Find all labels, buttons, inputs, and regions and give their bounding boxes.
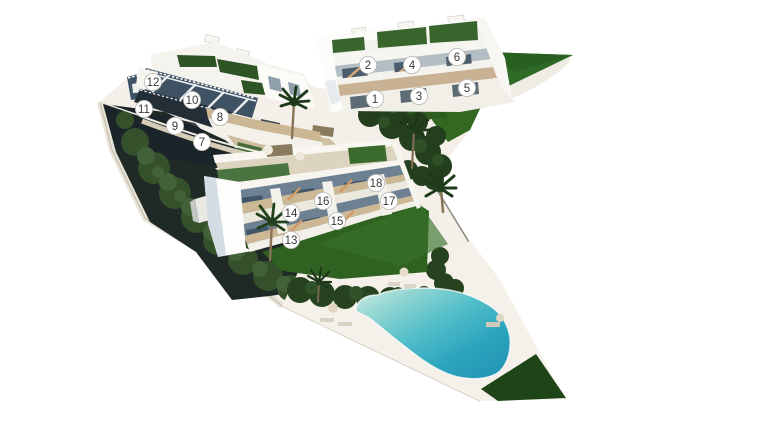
svg-text:18: 18 <box>370 178 383 190</box>
svg-text:2: 2 <box>365 60 371 72</box>
svg-text:6: 6 <box>454 52 460 64</box>
svg-text:16: 16 <box>317 196 330 208</box>
svg-text:10: 10 <box>186 95 199 107</box>
svg-text:8: 8 <box>217 112 223 124</box>
svg-text:14: 14 <box>285 208 298 220</box>
svg-text:12: 12 <box>147 77 160 89</box>
svg-text:17: 17 <box>383 196 396 208</box>
svg-text:7: 7 <box>199 137 205 149</box>
svg-text:3: 3 <box>416 91 422 103</box>
svg-text:4: 4 <box>409 60 416 72</box>
svg-text:11: 11 <box>138 104 150 116</box>
svg-text:15: 15 <box>331 216 344 228</box>
svg-text:5: 5 <box>464 83 470 95</box>
svg-text:9: 9 <box>172 121 178 133</box>
svg-text:13: 13 <box>285 235 298 247</box>
svg-text:1: 1 <box>372 94 378 106</box>
